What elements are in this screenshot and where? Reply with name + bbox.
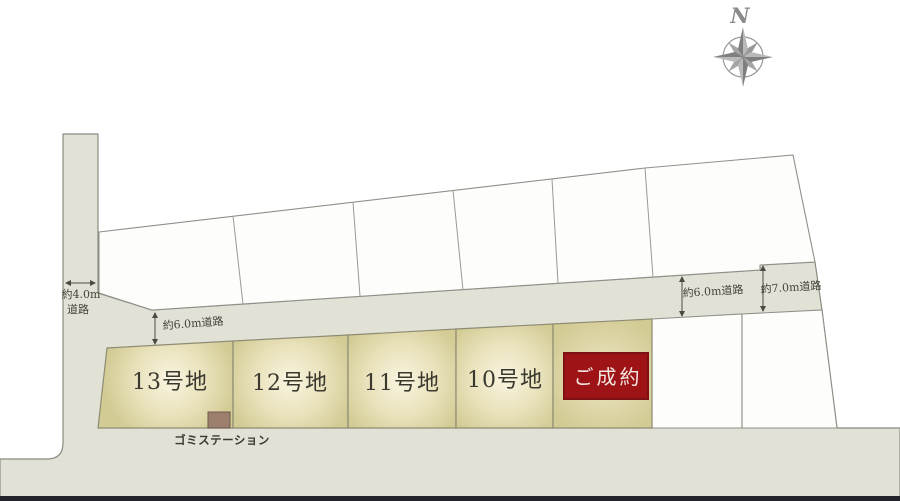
road-4m-label-line1: 約4.0m	[62, 287, 101, 301]
sold-badge-label: ご成約	[574, 365, 643, 389]
lot-10-label: 10号地	[467, 368, 543, 393]
compass-rose-icon	[713, 27, 773, 87]
lower-white-lot	[742, 310, 837, 428]
garbage-station-label: ゴミステーション	[174, 433, 270, 447]
lower-white-lot	[652, 314, 742, 428]
compass: N	[713, 3, 773, 87]
site-plan-page: 13号地 12号地 11号地 10号地 ご成約 ゴミステーション 約4.0m 道…	[0, 0, 900, 501]
lot-11-label: 11号地	[364, 371, 440, 396]
bottom-border-bar	[0, 496, 900, 501]
lot-12-label: 12号地	[252, 371, 328, 396]
garbage-station-marker	[208, 412, 230, 428]
site-plan-map: 13号地 12号地 11号地 10号地 ご成約 ゴミステーション 約4.0m 道…	[0, 0, 900, 501]
compass-n-label: N	[729, 3, 750, 28]
lot-13-label: 13号地	[132, 370, 208, 395]
road-4m-label-line2: 道路	[67, 302, 89, 316]
